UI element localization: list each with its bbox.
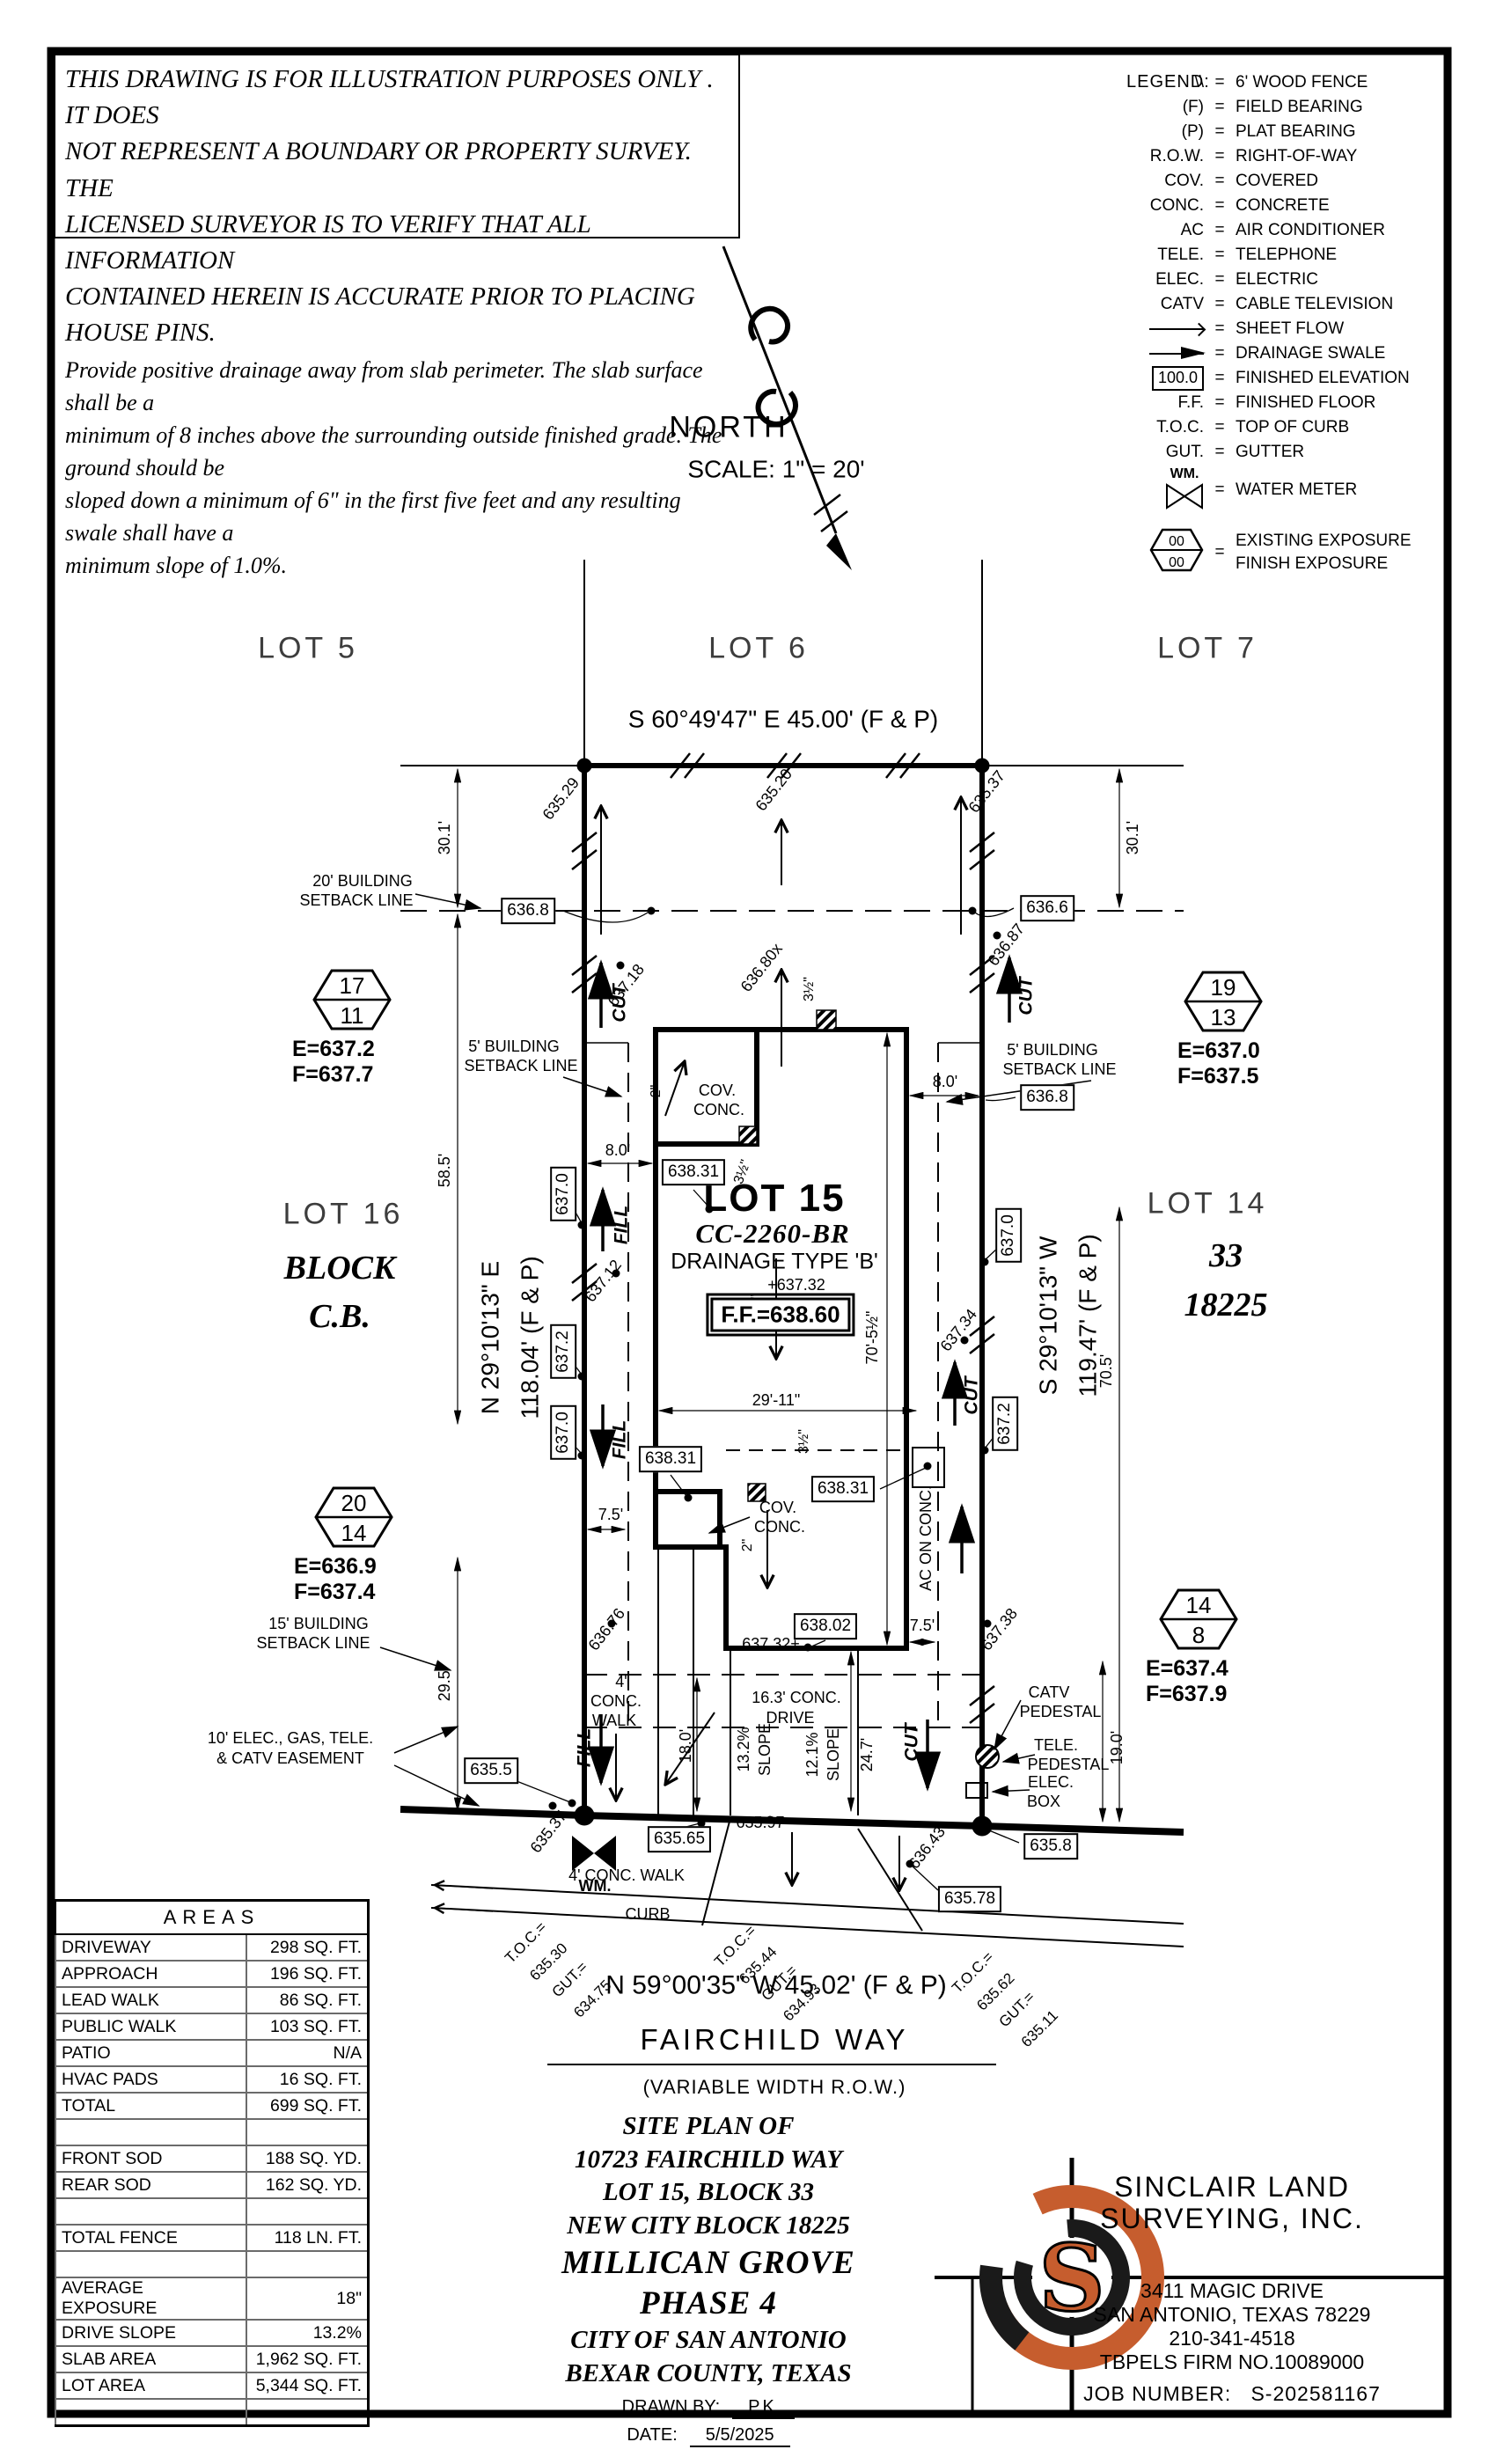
plan-label: 636.87 bbox=[985, 920, 1029, 970]
plan-label: 635.5 bbox=[464, 1757, 518, 1784]
plan-label: NORTH bbox=[669, 411, 788, 444]
plan-label: CUT bbox=[961, 1376, 981, 1414]
plan-label: 638.31 bbox=[811, 1476, 875, 1502]
plan-label: CATV bbox=[1029, 1684, 1070, 1702]
plan-label: 637.2 bbox=[992, 1397, 1018, 1451]
plan-label: 635.11 bbox=[1018, 2007, 1061, 2050]
firm-address-2: SAN ANTONIO, TEXAS 78229 bbox=[1012, 2303, 1452, 2327]
areas-row-label bbox=[55, 2119, 246, 2145]
areas-row-value: N/A bbox=[246, 2040, 369, 2066]
title-address: 10723 FAIRCHILD WAY bbox=[497, 2144, 920, 2177]
areas-row bbox=[55, 2399, 369, 2426]
plan-label: CC-2260-BR bbox=[695, 1219, 849, 1249]
firm-name-1: SINCLAIR LAND bbox=[1012, 2172, 1452, 2204]
areas-row-value: 118 LN. FT. bbox=[246, 2225, 369, 2251]
areas-row-value: 5,344 SQ. FT. bbox=[246, 2372, 369, 2399]
plan-label: 636.76 bbox=[585, 1605, 629, 1654]
plan-label: 5' BUILDING bbox=[468, 1038, 559, 1056]
plan-label: FILL bbox=[574, 1728, 594, 1767]
areas-row-value: 298 SQ. FT. bbox=[246, 1934, 369, 1961]
areas-row: TOTAL FENCE118 LN. FT. bbox=[55, 2225, 369, 2251]
plan-label: 24.7' bbox=[859, 1738, 876, 1771]
plan-label: SCALE: 1" = 20' bbox=[687, 457, 864, 484]
plan-label: 30.1' bbox=[1125, 821, 1142, 854]
areas-row-value bbox=[246, 2198, 369, 2225]
plan-label: 635.78 bbox=[938, 1886, 1001, 1912]
plan-label: 18.0' bbox=[678, 1729, 695, 1763]
plan-label: PEDESTAL bbox=[1028, 1756, 1110, 1774]
plan-label: 5' BUILDING bbox=[1007, 1042, 1097, 1060]
plan-label: 15' BUILDING bbox=[268, 1616, 368, 1633]
svg-text:8: 8 bbox=[1192, 1622, 1205, 1648]
areas-row-label: DRIVE SLOPE bbox=[55, 2320, 246, 2346]
plan-label: 58.5' bbox=[436, 1154, 454, 1187]
areas-row bbox=[55, 2119, 369, 2145]
areas-row-label: TOTAL bbox=[55, 2093, 246, 2119]
exposure-values-4: E=637.4F=637.9 bbox=[1146, 1656, 1228, 1707]
firm-phone: 210-341-4518 bbox=[1012, 2327, 1452, 2350]
plan-label: 2" bbox=[649, 1085, 664, 1098]
plan-label: WM. bbox=[579, 1878, 612, 1896]
plan-label: 636.80x bbox=[737, 941, 786, 996]
exposure-values-2: E=637.0F=637.5 bbox=[1177, 1038, 1260, 1089]
plan-label: SETBACK LINE bbox=[256, 1635, 370, 1653]
plan-label: & CATV EASEMENT bbox=[216, 1750, 364, 1768]
title-ncb: NEW CITY BLOCK 18225 bbox=[497, 2210, 920, 2243]
plan-label: COV. bbox=[699, 1082, 736, 1100]
areas-row-value: 699 SQ. FT. bbox=[246, 2093, 369, 2119]
plan-label: FILL bbox=[611, 1206, 631, 1244]
plan-label: 13.2% bbox=[736, 1727, 753, 1771]
plan-label: 3½" bbox=[802, 977, 818, 1001]
plan-label: 635.20 bbox=[752, 766, 796, 815]
areas-row-value: 162 SQ. YD. bbox=[246, 2172, 369, 2198]
exposure-hexagon-1: 1711 bbox=[312, 968, 392, 1031]
areas-row-value bbox=[246, 2251, 369, 2277]
areas-row-label bbox=[55, 2251, 246, 2277]
plan-label: 637.0 bbox=[995, 1208, 1022, 1263]
plan-label: 636.8 bbox=[501, 898, 555, 924]
plan-label: 7.5' bbox=[910, 1617, 935, 1635]
plan-label: 635.29 bbox=[539, 774, 583, 824]
svg-text:11: 11 bbox=[341, 1002, 364, 1029]
svg-text:14: 14 bbox=[1186, 1592, 1212, 1618]
plan-label: 2" bbox=[740, 1539, 756, 1552]
svg-text:20: 20 bbox=[341, 1490, 367, 1516]
plan-label: 118.04' (F & P) bbox=[517, 1256, 545, 1419]
areas-row-label: SLAB AREA bbox=[55, 2346, 246, 2372]
areas-row: REAR SOD162 SQ. YD. bbox=[55, 2172, 369, 2198]
drawn-by-value: P.K. bbox=[732, 2397, 795, 2419]
areas-row: LEAD WALK86 SQ. FT. bbox=[55, 1987, 369, 2013]
firm-number: TBPELS FIRM NO.10089000 bbox=[1012, 2350, 1452, 2374]
areas-row: FRONT SOD188 SQ. YD. bbox=[55, 2145, 369, 2172]
title-lot-block: LOT 15, BLOCK 33 bbox=[497, 2176, 920, 2210]
plan-label: LOT 7 bbox=[1157, 632, 1258, 664]
areas-row: DRIVEWAY298 SQ. FT. bbox=[55, 1934, 369, 1961]
plan-label: N 29°10'13" E bbox=[478, 1261, 505, 1414]
areas-row-value bbox=[246, 2399, 369, 2426]
plan-label: LOT 16 bbox=[283, 1198, 404, 1230]
areas-row: DRIVE SLOPE13.2% bbox=[55, 2320, 369, 2346]
title-line: SITE PLAN OF bbox=[497, 2110, 920, 2144]
plan-label: 12.1% bbox=[804, 1732, 822, 1777]
date-label: DATE: bbox=[627, 2425, 677, 2447]
site-plan-page: { "disclaimer": { "para1": [ "THIS DRAWI… bbox=[0, 0, 1496, 2464]
areas-row-label: PATIO bbox=[55, 2040, 246, 2066]
plan-label: 29'-11" bbox=[752, 1392, 801, 1410]
plan-label: CURB bbox=[625, 1906, 670, 1924]
areas-row-label: PUBLIC WALK bbox=[55, 2013, 246, 2040]
plan-label: 636.43 bbox=[906, 1823, 950, 1873]
plan-label: WALK bbox=[592, 1712, 636, 1730]
exposure-hexagon-4: 148 bbox=[1158, 1588, 1239, 1651]
plan-label: 635.65 bbox=[648, 1826, 711, 1852]
exposure-values-1: E=637.2F=637.7 bbox=[292, 1037, 375, 1088]
plan-label: SETBACK LINE bbox=[464, 1058, 577, 1075]
areas-row-value: 196 SQ. FT. bbox=[246, 1961, 369, 1987]
plan-label: 8.0' bbox=[605, 1142, 630, 1160]
plan-label: SLOPE bbox=[757, 1723, 774, 1776]
plan-label: 70'-5½" bbox=[864, 1311, 882, 1365]
areas-table-title: AREAS bbox=[55, 1901, 369, 1935]
areas-row bbox=[55, 2251, 369, 2277]
areas-row-label bbox=[55, 2399, 246, 2426]
plan-label: LOT 6 bbox=[708, 632, 809, 664]
plan-label: CUT bbox=[1016, 977, 1036, 1015]
firm-name-2: SURVEYING, INC. bbox=[1012, 2204, 1452, 2235]
areas-row-value bbox=[246, 2119, 369, 2145]
plan-label: 635.97 bbox=[736, 1815, 784, 1832]
areas-row: HVAC PADS16 SQ. FT. bbox=[55, 2066, 369, 2093]
plan-label: PEDESTAL bbox=[1020, 1704, 1102, 1721]
plan-label: SETBACK LINE bbox=[299, 892, 413, 910]
plan-label: CONC. bbox=[693, 1102, 744, 1119]
plan-label: LOT 14 bbox=[1148, 1187, 1268, 1220]
plan-label: FAIRCHILD WAY bbox=[640, 2024, 908, 2056]
areas-row: AVERAGE EXPOSURE18" bbox=[55, 2277, 369, 2320]
plan-label: 637.32+ bbox=[742, 1636, 800, 1654]
exposure-values-3: E=636.9F=637.4 bbox=[294, 1554, 377, 1605]
areas-row-label: APPROACH bbox=[55, 1961, 246, 1987]
plan-label: 635.37 bbox=[527, 1808, 571, 1857]
plan-label: CONC. bbox=[590, 1693, 642, 1711]
title-phase: PHASE 4 bbox=[497, 2284, 920, 2324]
plan-label: 8.0' bbox=[933, 1074, 957, 1091]
plan-label: 637.34 bbox=[937, 1306, 981, 1355]
areas-row: LOT AREA5,344 SQ. FT. bbox=[55, 2372, 369, 2399]
job-number: JOB NUMBER: S-202581167 bbox=[1012, 2382, 1452, 2406]
areas-row-value: 188 SQ. YD. bbox=[246, 2145, 369, 2172]
areas-row-label: LOT AREA bbox=[55, 2372, 246, 2399]
plan-label: LOT 5 bbox=[258, 632, 358, 664]
areas-row: APPROACH196 SQ. FT. bbox=[55, 1961, 369, 1987]
plan-label: (VARIABLE WIDTH R.O.W.) bbox=[643, 2077, 906, 2098]
svg-text:19: 19 bbox=[1211, 974, 1236, 1001]
plan-label: 637.0 bbox=[550, 1167, 576, 1221]
finished-floor-value: F.F.=638.60 bbox=[710, 1298, 850, 1332]
plan-label: S 29°10'13" W bbox=[1036, 1236, 1063, 1396]
plan-label: BLOCK bbox=[284, 1250, 396, 1287]
plan-label: 638.31 bbox=[639, 1446, 702, 1472]
plan-label: C.B. bbox=[309, 1299, 370, 1336]
plan-label: 636.6 bbox=[1020, 895, 1074, 921]
plan-label: 3½" bbox=[796, 1429, 812, 1454]
plan-label: AC ON CONC. bbox=[918, 1485, 935, 1591]
areas-row-label: AVERAGE EXPOSURE bbox=[55, 2277, 246, 2320]
plan-label: 16.3' CONC. bbox=[752, 1690, 840, 1707]
plan-label: 70.5' bbox=[1098, 1354, 1116, 1388]
plan-label: TELE. bbox=[1034, 1737, 1078, 1755]
areas-row-label: FRONT SOD bbox=[55, 2145, 246, 2172]
plan-label: 637.12 bbox=[582, 1257, 626, 1306]
plan-label: 19.0' bbox=[1109, 1731, 1126, 1764]
job-number-label: JOB NUMBER: bbox=[1083, 2382, 1231, 2405]
areas-row-label: HVAC PADS bbox=[55, 2066, 246, 2093]
areas-row-label: REAR SOD bbox=[55, 2172, 246, 2198]
plan-label: 637.2 bbox=[550, 1324, 576, 1379]
plan-label: 638.02 bbox=[794, 1613, 857, 1639]
title-subdivision: MILLICAN GROVE bbox=[497, 2243, 920, 2284]
plan-label: 637.38 bbox=[978, 1605, 1022, 1654]
plan-label: S 60°49'47" E 45.00' (F & P) bbox=[628, 707, 938, 734]
plan-label: FILL bbox=[609, 1420, 629, 1459]
plan-label: 33 bbox=[1209, 1238, 1243, 1275]
areas-row-value: 18" bbox=[246, 2277, 369, 2320]
firm-address-1: 3411 MAGIC DRIVE bbox=[1012, 2279, 1452, 2303]
areas-table: AREAS DRIVEWAY298 SQ. FT.APPROACH196 SQ.… bbox=[55, 1899, 370, 2427]
plan-label: CONC. bbox=[754, 1519, 805, 1536]
plan-label: SETBACK LINE bbox=[1002, 1061, 1116, 1079]
plan-label: 30.1' bbox=[436, 821, 454, 854]
plan-label: 7.5' bbox=[598, 1507, 623, 1524]
plan-label: DRAINAGE TYPE 'B' bbox=[671, 1250, 878, 1274]
drawn-by-label: DRAWN BY: bbox=[622, 2397, 721, 2419]
svg-text:13: 13 bbox=[1211, 1004, 1236, 1030]
svg-text:14: 14 bbox=[341, 1520, 367, 1546]
areas-row-value: 86 SQ. FT. bbox=[246, 1987, 369, 2013]
plan-label: 638.31 bbox=[662, 1159, 725, 1185]
exposure-hexagon-3: 2014 bbox=[313, 1485, 394, 1549]
areas-row: PUBLIC WALK103 SQ. FT. bbox=[55, 2013, 369, 2040]
plan-label: 20' BUILDING bbox=[312, 873, 412, 891]
title-city: CITY OF SAN ANTONIO bbox=[497, 2324, 920, 2358]
plan-label: 10' ELEC., GAS, TELE. bbox=[208, 1730, 373, 1748]
date-value: 5/5/2025 bbox=[690, 2425, 790, 2447]
plan-label: 637.0 bbox=[550, 1405, 576, 1460]
plan-label: COV. bbox=[759, 1500, 796, 1517]
areas-row-label: LEAD WALK bbox=[55, 1987, 246, 2013]
firm-block: SINCLAIR LAND SURVEYING, INC. 3411 MAGIC… bbox=[1012, 2172, 1452, 2406]
areas-row-value: 13.2% bbox=[246, 2320, 369, 2346]
areas-row bbox=[55, 2198, 369, 2225]
plan-label: 4' bbox=[615, 1674, 627, 1691]
plan-label: 29.5' bbox=[436, 1668, 454, 1701]
plan-label: 18225 bbox=[1184, 1287, 1268, 1324]
plan-label: CUT bbox=[901, 1723, 921, 1761]
areas-row-label bbox=[55, 2198, 246, 2225]
svg-text:17: 17 bbox=[340, 972, 365, 999]
plan-label: SLOPE bbox=[825, 1728, 843, 1781]
areas-row: TOTAL699 SQ. FT. bbox=[55, 2093, 369, 2119]
plan-label: +637.32 bbox=[767, 1277, 825, 1294]
plan-label: ELEC. bbox=[1028, 1774, 1074, 1792]
areas-row-value: 16 SQ. FT. bbox=[246, 2066, 369, 2093]
areas-row: PATION/A bbox=[55, 2040, 369, 2066]
job-number-value: S-202581167 bbox=[1250, 2382, 1380, 2405]
areas-row: SLAB AREA1,962 SQ. FT. bbox=[55, 2346, 369, 2372]
plan-label: 635.8 bbox=[1023, 1833, 1078, 1859]
areas-row-label: DRIVEWAY bbox=[55, 1934, 246, 1961]
areas-row-value: 103 SQ. FT. bbox=[246, 2013, 369, 2040]
areas-row-label: TOTAL FENCE bbox=[55, 2225, 246, 2251]
plan-label: BOX bbox=[1027, 1793, 1060, 1811]
plan-label: 636.8 bbox=[1020, 1084, 1074, 1111]
title-county: BEXAR COUNTY, TEXAS bbox=[497, 2358, 920, 2391]
plan-label: 635.37 bbox=[965, 767, 1009, 817]
areas-row-value: 1,962 SQ. FT. bbox=[246, 2346, 369, 2372]
title-block: SITE PLAN OF 10723 FAIRCHILD WAY LOT 15,… bbox=[497, 2110, 920, 2447]
exposure-hexagon-2: 1913 bbox=[1183, 970, 1264, 1033]
